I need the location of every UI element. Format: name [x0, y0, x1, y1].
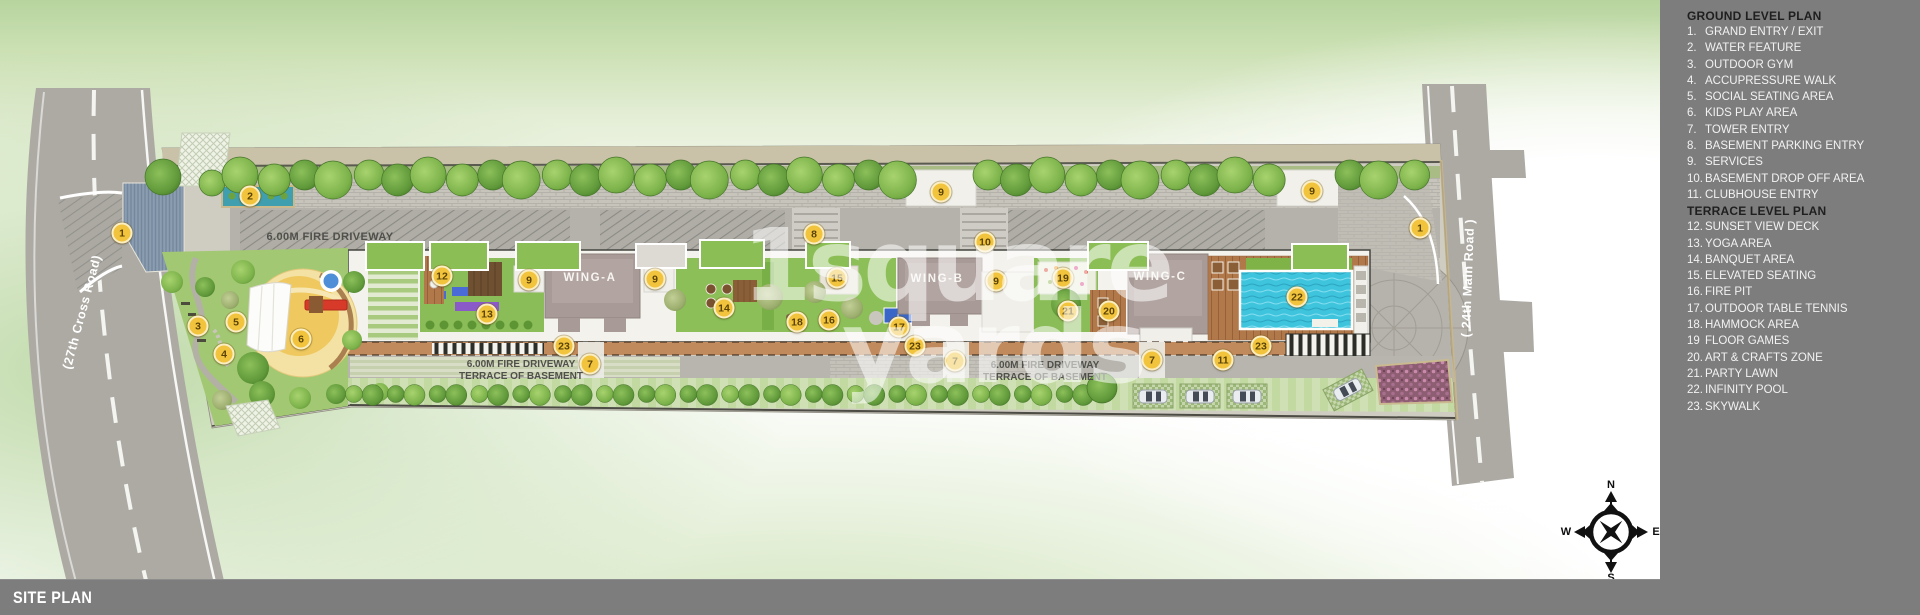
legend-item: 20.ART & CRAFTS ZONE — [1687, 350, 1914, 366]
tree-icon — [542, 160, 572, 190]
legend-item-number: 20. — [1687, 350, 1705, 366]
plan-marker-18: 18 — [787, 312, 808, 333]
legend-item-number: 2. — [1687, 40, 1705, 56]
legend-item-label: SUNSET VIEW DECK — [1705, 221, 1819, 233]
legend-item-label: PARTY LAWN — [1705, 368, 1778, 380]
legend-item-number: 7. — [1687, 122, 1705, 138]
tree-icon — [973, 386, 990, 403]
legend-item-number: 3. — [1687, 57, 1705, 73]
legend-item: 17.OUTDOOR TABLE TENNIS — [1687, 301, 1914, 317]
legend-item-label: OUTDOOR GYM — [1705, 59, 1793, 71]
legend-item-number: 5. — [1687, 89, 1705, 105]
legend-item: 10.BASEMENT DROP OFF AREA — [1687, 171, 1914, 187]
legend-item-number: 18. — [1687, 317, 1705, 333]
plan-marker-23: 23 — [905, 336, 926, 357]
plan-marker-10: 10 — [975, 232, 996, 253]
legend-item-label: SOCIAL SEATING AREA — [1705, 91, 1833, 103]
wing-c-label: WING-C — [1133, 271, 1186, 283]
wing-a-label: WING-A — [563, 272, 616, 284]
legend-item-number: 1. — [1687, 24, 1705, 40]
legend-item-label: ELEVATED SEATING — [1705, 270, 1816, 282]
tree-icon — [1217, 157, 1253, 193]
plan-marker-17: 17 — [889, 317, 910, 338]
plan-marker-6: 6 — [291, 329, 312, 350]
plan-marker-20: 20 — [1099, 301, 1120, 322]
legend-item-number: 9. — [1687, 154, 1705, 170]
tree-icon — [446, 385, 467, 406]
legend-item-label: OUTDOOR TABLE TENNIS — [1705, 303, 1848, 315]
tree-icon — [634, 164, 666, 196]
shade-canopy — [247, 283, 291, 352]
tree-icon — [231, 260, 255, 284]
legend-item-label: FIRE PIT — [1705, 286, 1752, 298]
tree-icon — [722, 386, 739, 403]
legend-item-number: 14. — [1687, 252, 1705, 268]
plan-marker-15: 15 — [827, 268, 848, 289]
tree-icon — [570, 164, 602, 196]
compass-w-label: W — [1561, 526, 1571, 538]
plan-marker-22: 22 — [1287, 287, 1308, 308]
tree-icon — [841, 297, 863, 319]
legend-item-number: 16. — [1687, 284, 1705, 300]
car-icon — [1233, 390, 1261, 403]
plan-marker-23: 23 — [1251, 336, 1272, 357]
plan-marker-11: 11 — [1213, 350, 1234, 371]
tree-icon — [346, 386, 363, 403]
tree-icon — [410, 157, 446, 193]
car-icon — [1139, 390, 1167, 403]
legend-item-label: ACCUPRESSURE WALK — [1705, 75, 1836, 87]
legend-item: 2.WATER FEATURE — [1687, 40, 1914, 56]
legend-item-number: 15. — [1687, 268, 1705, 284]
legend-item: 14.BANQUET AREA — [1687, 252, 1914, 268]
tree-icon — [404, 385, 425, 406]
legend-section-header: TERRACE LEVEL PLAN — [1687, 203, 1914, 219]
tree-icon — [690, 161, 728, 199]
plan-marker-7: 7 — [945, 351, 966, 372]
tree-icon — [446, 164, 478, 196]
plan-marker-1: 1 — [112, 223, 133, 244]
legend-item: 8.BASEMENT PARKING ENTRY — [1687, 138, 1914, 154]
legend-item-label: TOWER ENTRY — [1705, 124, 1790, 136]
legend-item: 11.CLUBHOUSE ENTRY — [1687, 187, 1914, 203]
legend-item: 13.YOGA AREA — [1687, 236, 1914, 252]
site-plan-page: 1square yards 6.00M FIRE DRIVEWAY 6.00M … — [0, 0, 1920, 615]
legend-item: 4.ACCUPRESSURE WALK — [1687, 73, 1914, 89]
plan-marker-14: 14 — [714, 298, 735, 319]
tree-icon — [655, 385, 676, 406]
car-icon — [1186, 390, 1214, 403]
visitor-parking-pad — [1133, 384, 1173, 408]
banquet-table — [722, 284, 732, 294]
tree-icon — [502, 161, 540, 199]
plan-marker-2: 2 — [240, 186, 261, 207]
tree-icon — [989, 385, 1010, 406]
legend-item-label: FLOOR GAMES — [1705, 335, 1789, 347]
legend-item: 5.SOCIAL SEATING AREA — [1687, 89, 1914, 105]
tree-icon — [697, 385, 718, 406]
legend-item-label: BASEMENT PARKING ENTRY — [1705, 140, 1864, 152]
tree-icon — [221, 291, 239, 309]
plan-marker-16: 16 — [819, 310, 840, 331]
plan-marker-5: 5 — [226, 312, 247, 333]
legend-item-number: 6. — [1687, 105, 1705, 121]
legend-item-label: CLUBHOUSE ENTRY — [1705, 189, 1819, 201]
compass-n-label: N — [1607, 479, 1615, 491]
tree-icon — [847, 386, 864, 403]
tree-icon — [1161, 160, 1191, 190]
site-plan-drawing — [0, 0, 1920, 615]
tree-icon — [1253, 164, 1285, 196]
tree-icon — [1031, 385, 1052, 406]
tree-icon — [757, 284, 783, 310]
tree-icon — [596, 386, 613, 403]
tree-icon — [529, 385, 550, 406]
tree-icon — [805, 386, 822, 403]
plan-marker-3: 3 — [188, 316, 209, 337]
tree-icon — [1014, 386, 1031, 403]
tree-icon — [1065, 164, 1097, 196]
tree-icon — [864, 385, 885, 406]
legend-item: 3.OUTDOOR GYM — [1687, 57, 1914, 73]
tree-icon — [471, 386, 488, 403]
bottom-title-bar: SITE PLAN — [0, 579, 1920, 615]
plan-marker-12: 12 — [432, 266, 453, 287]
plan-marker-8: 8 — [804, 224, 825, 245]
tree-icon — [513, 386, 530, 403]
legend-item-number: 13. — [1687, 236, 1705, 252]
legend-item-number: 17. — [1687, 301, 1705, 317]
legend-item-number: 11. — [1687, 187, 1705, 203]
fire-driveway-text: 6.00M FIRE DRIVEWAY — [983, 360, 1107, 372]
tree-icon — [199, 170, 225, 196]
tree-icon — [571, 385, 592, 406]
legend-item: 1.GRAND ENTRY / EXIT — [1687, 24, 1914, 40]
tree-icon — [1056, 386, 1073, 403]
tree-icon — [878, 161, 916, 199]
tree-icon — [906, 385, 927, 406]
legend-item-label: BANQUET AREA — [1705, 254, 1794, 266]
legend-item-number: 23. — [1687, 399, 1705, 415]
tree-icon — [613, 385, 634, 406]
compass-rose — [1574, 491, 1648, 573]
legend-item-number: 21. — [1687, 366, 1705, 382]
tree-icon — [289, 387, 311, 409]
legend-item-number: 12. — [1687, 219, 1705, 235]
tree-icon — [764, 386, 781, 403]
tree-icon — [1189, 164, 1221, 196]
tree-icon — [326, 384, 346, 404]
legend-section-header: GROUND LEVEL PLAN — [1687, 8, 1914, 24]
visitor-parking-pad — [1227, 384, 1267, 408]
tree-icon — [342, 330, 362, 350]
legend-item-label: GRAND ENTRY / EXIT — [1705, 26, 1823, 38]
legend-item-label: YOGA AREA — [1705, 238, 1771, 250]
tree-icon — [823, 164, 855, 196]
legend-item: 18.HAMMOCK AREA — [1687, 317, 1914, 333]
tree-icon — [1001, 164, 1033, 196]
tree-icon — [195, 277, 215, 297]
flower-bed — [1376, 360, 1452, 404]
tree-icon — [258, 164, 290, 196]
legend-item: 23.SKYWALK — [1687, 399, 1914, 415]
legend-item: 19FLOOR GAMES — [1687, 333, 1914, 349]
tree-icon — [1400, 160, 1430, 190]
visitor-parking-pad — [1180, 384, 1220, 408]
legend-item-label: KIDS PLAY AREA — [1705, 107, 1797, 119]
legend-item-number: 4. — [1687, 73, 1705, 89]
legend-item-number: 10. — [1687, 171, 1705, 187]
legend-panel: GROUND LEVEL PLAN1.GRAND ENTRY / EXIT2.W… — [1660, 0, 1920, 615]
fire-driveway-label-southwest: 6.00M FIRE DRIVEWAY TERRACE OF BASEMENT — [459, 359, 583, 383]
tree-icon — [145, 159, 181, 195]
plan-marker-23: 23 — [554, 336, 575, 357]
tree-icon — [555, 386, 572, 403]
legend-item-label: WATER FEATURE — [1705, 42, 1801, 54]
tree-icon — [822, 385, 843, 406]
legend-item-label: BASEMENT DROP OFF AREA — [1705, 173, 1864, 185]
plan-marker-9: 9 — [519, 270, 540, 291]
tree-icon — [429, 386, 446, 403]
tree-icon — [382, 164, 414, 196]
tree-icon — [161, 271, 183, 293]
plan-marker-13: 13 — [477, 304, 498, 325]
tree-icon — [354, 160, 384, 190]
tree-icon — [973, 160, 1003, 190]
plan-marker-19: 19 — [1053, 268, 1074, 289]
tree-icon — [314, 161, 352, 199]
tree-icon — [758, 164, 790, 196]
tree-icon — [598, 157, 634, 193]
legend-item: 6.KIDS PLAY AREA — [1687, 105, 1914, 121]
plan-marker-9: 9 — [645, 269, 666, 290]
legend-item-label: HAMMOCK AREA — [1705, 319, 1799, 331]
terrace-basement-text: TERRACE OF BASEMENT — [459, 371, 583, 383]
legend-item: 7.TOWER ENTRY — [1687, 122, 1914, 138]
legend-item: 12.SUNSET VIEW DECK — [1687, 219, 1914, 235]
tree-icon — [680, 386, 697, 403]
legend-item-number: 22. — [1687, 382, 1705, 398]
tree-icon — [947, 385, 968, 406]
legend-item: 16.FIRE PIT — [1687, 284, 1914, 300]
banquet-table — [706, 284, 716, 294]
plan-marker-9: 9 — [931, 182, 952, 203]
wing-b-label: WING-B — [910, 273, 963, 285]
tree-icon — [488, 385, 509, 406]
tree-icon — [730, 160, 760, 190]
plan-marker-9: 9 — [986, 271, 1007, 292]
legend-item: 21.PARTY LAWN — [1687, 366, 1914, 382]
tree-icon — [237, 352, 269, 384]
plan-marker-4: 4 — [214, 344, 235, 365]
tree-icon — [1029, 157, 1065, 193]
tree-icon — [780, 385, 801, 406]
plan-marker-21: 21 — [1058, 301, 1079, 322]
tree-icon — [638, 386, 655, 403]
legend-item-number: 8. — [1687, 138, 1705, 154]
legend-item: 15.ELEVATED SEATING — [1687, 268, 1914, 284]
page-title: SITE PLAN — [13, 588, 92, 608]
plan-marker-7: 7 — [580, 354, 601, 375]
tree-icon — [387, 386, 404, 403]
plan-marker-9: 9 — [1302, 181, 1323, 202]
compass-e-label: E — [1652, 526, 1659, 538]
tree-icon — [738, 385, 759, 406]
tree-icon — [804, 281, 826, 303]
legend-item-label: SKYWALK — [1705, 401, 1760, 413]
plan-marker-1: 1 — [1410, 218, 1431, 239]
tree-icon — [1121, 161, 1159, 199]
legend-item-label: SERVICES — [1705, 156, 1763, 168]
tree-icon — [1360, 161, 1398, 199]
plan-marker-7: 7 — [1142, 350, 1163, 371]
tree-icon — [931, 386, 948, 403]
legend-item-label: INFINITY POOL — [1705, 384, 1788, 396]
legend-sections: GROUND LEVEL PLAN1.GRAND ENTRY / EXIT2.W… — [1687, 8, 1914, 415]
tree-icon — [786, 157, 822, 193]
legend-item-label: ART & CRAFTS ZONE — [1705, 352, 1823, 364]
tree-icon — [664, 289, 686, 311]
fire-driveway-label-north: 6.00M FIRE DRIVEWAY — [266, 231, 393, 243]
legend-item: 9.SERVICES — [1687, 154, 1914, 170]
legend-item-number: 19 — [1687, 333, 1705, 349]
pool-lounger — [1312, 319, 1338, 327]
tree-icon — [889, 386, 906, 403]
tree-icon — [362, 385, 383, 406]
terrace-basement-text: TERRACE OF BASEMENT — [983, 372, 1107, 384]
fire-driveway-text: 6.00M FIRE DRIVEWAY — [459, 359, 583, 371]
pergola — [733, 280, 757, 302]
fire-driveway-label-southeast: 6.00M FIRE DRIVEWAY TERRACE OF BASEMENT — [983, 360, 1107, 384]
tower-building — [348, 240, 1370, 354]
tree-icon — [343, 271, 365, 293]
legend-item: 22.INFINITY POOL — [1687, 382, 1914, 398]
